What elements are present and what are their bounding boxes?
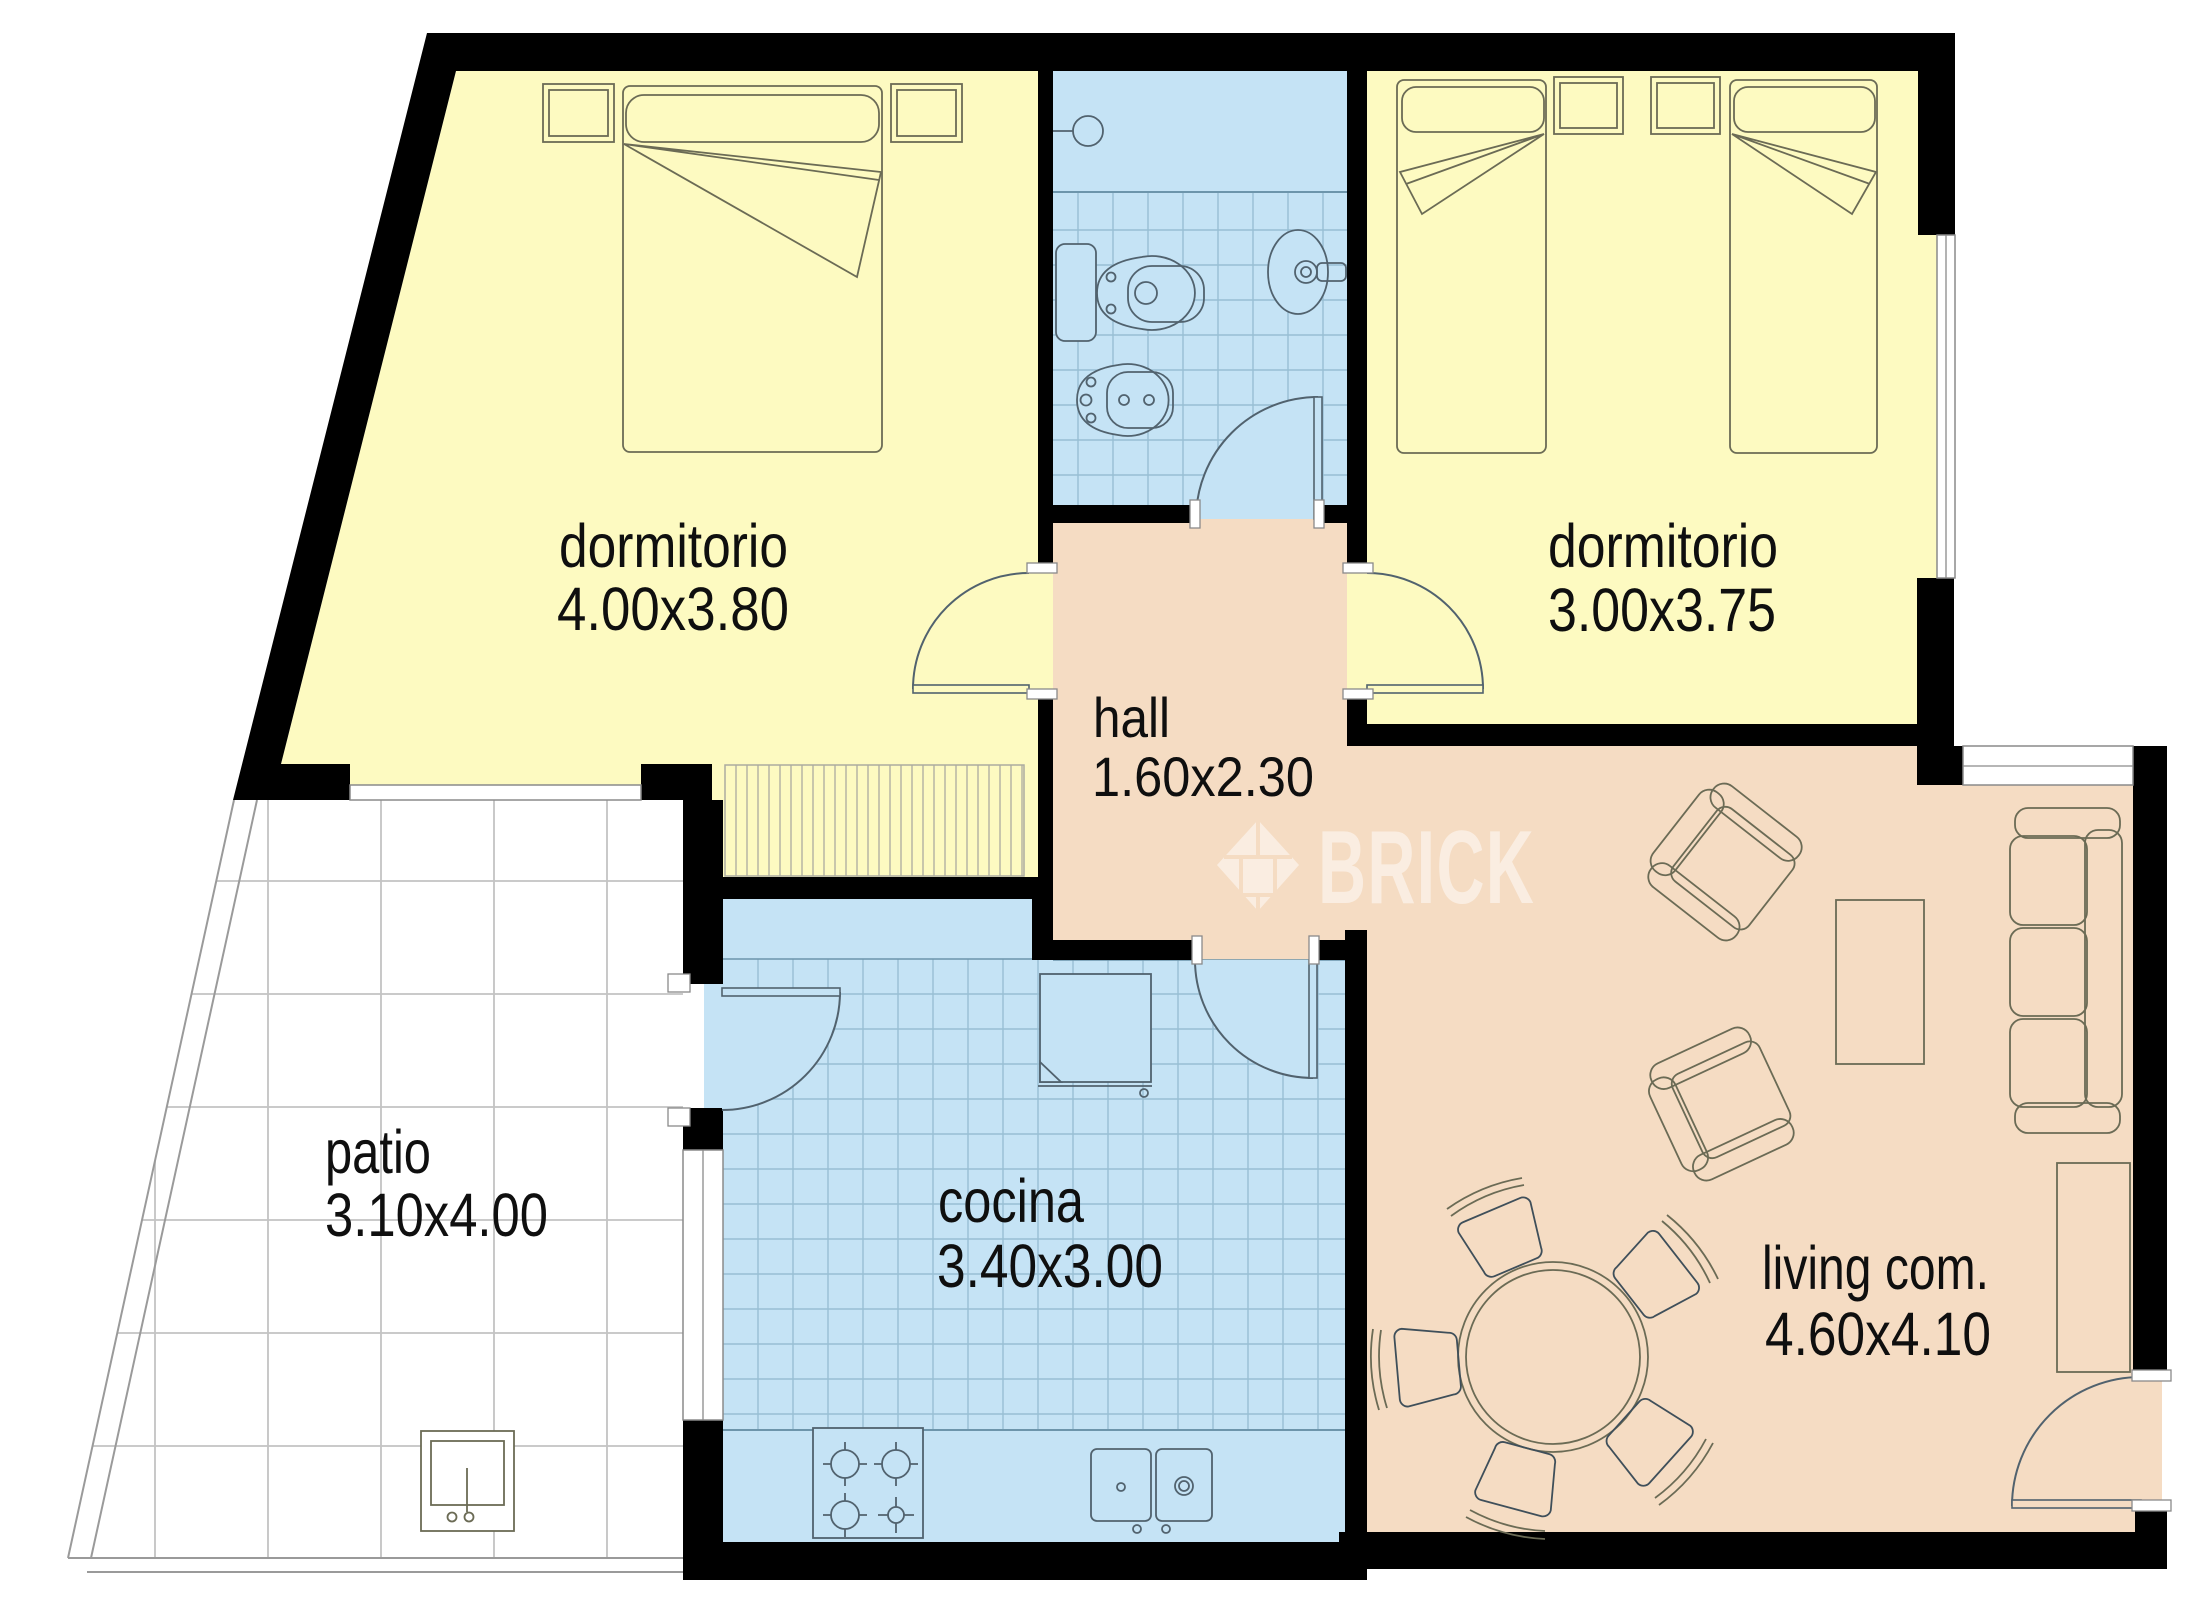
svg-text:BRICK: BRICK	[1318, 809, 1535, 926]
svg-text:cocina: cocina	[938, 1167, 1084, 1235]
svg-text:living com.: living com.	[1762, 1234, 1989, 1302]
svg-text:dormitorio: dormitorio	[1548, 512, 1778, 580]
svg-text:3.40x3.00: 3.40x3.00	[937, 1232, 1163, 1300]
svg-text:4.60x4.10: 4.60x4.10	[1765, 1300, 1991, 1368]
svg-text:4.00x3.80: 4.00x3.80	[557, 575, 789, 643]
svg-text:hall: hall	[1093, 686, 1170, 749]
svg-text:dormitorio: dormitorio	[559, 512, 788, 580]
svg-text:3.10x4.00: 3.10x4.00	[325, 1181, 548, 1249]
svg-text:patio: patio	[325, 1118, 431, 1186]
svg-text:3.00x3.75: 3.00x3.75	[1548, 576, 1776, 644]
svg-text:1.60x2.30: 1.60x2.30	[1092, 745, 1314, 808]
